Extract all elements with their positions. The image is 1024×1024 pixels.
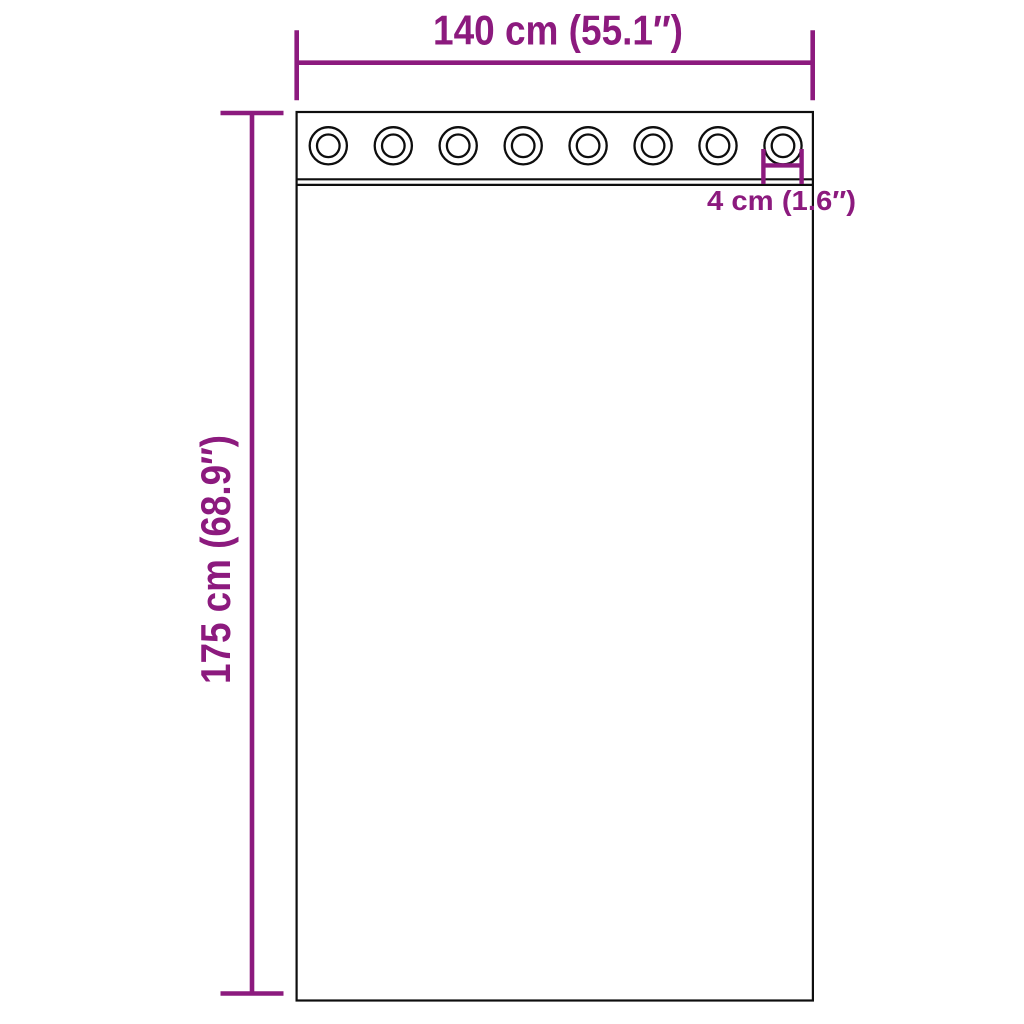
svg-text:4 cm (1.6″): 4 cm (1.6″) (707, 185, 856, 216)
svg-text:140 cm (55.1″): 140 cm (55.1″) (433, 7, 683, 54)
svg-text:175 cm (68.9″): 175 cm (68.9″) (192, 435, 239, 684)
